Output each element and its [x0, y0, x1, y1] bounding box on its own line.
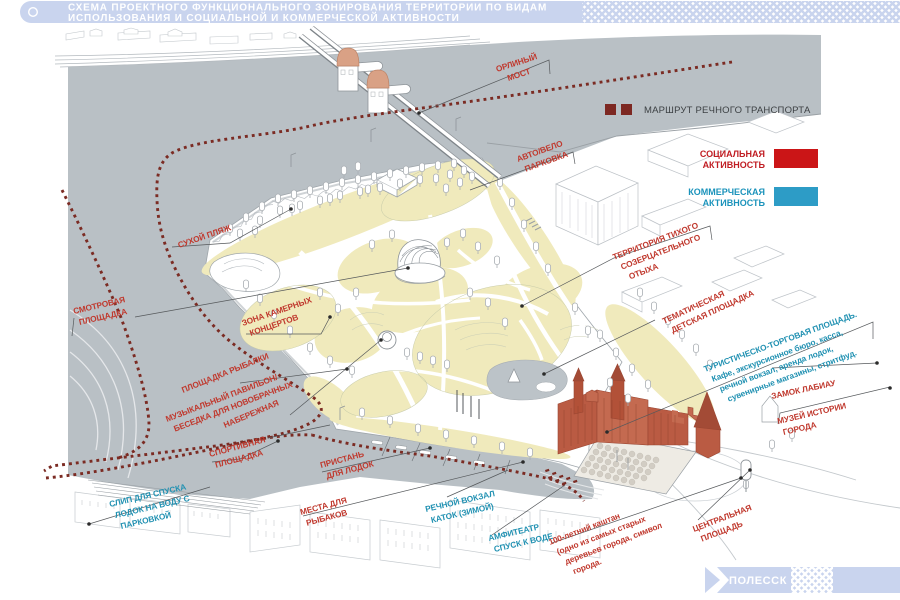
- svg-text:ПОЛЕССК: ПОЛЕССК: [729, 575, 787, 587]
- svg-text:СОЦИАЛЬНАЯ: СОЦИАЛЬНАЯ: [700, 149, 765, 159]
- svg-text:АКТИВНОСТЬ: АКТИВНОСТЬ: [703, 198, 766, 208]
- svg-text:АКТИВНОСТЬ: АКТИВНОСТЬ: [703, 160, 766, 170]
- svg-text:КОММЕРЧЕСКАЯ: КОММЕРЧЕСКАЯ: [688, 187, 765, 197]
- svg-text:ИСПОЛЬЗОВАНИЯ И СОЦИАЛЬНОЙ И: ИСПОЛЬЗОВАНИЯ И СОЦИАЛЬНОЙ И КОММЕРЧЕСКО…: [68, 11, 460, 24]
- svg-text:МАРШРУТ РЕЧНОГО ТРАНСПОРТА: МАРШРУТ РЕЧНОГО ТРАНСПОРТА: [644, 105, 811, 116]
- svg-text:СХЕМА ПРОЕКТНОГО ФУНКЦИОНАЛЬНО: СХЕМА ПРОЕКТНОГО ФУНКЦИОНАЛЬНОГО ЗОНИРОВ…: [68, 3, 547, 14]
